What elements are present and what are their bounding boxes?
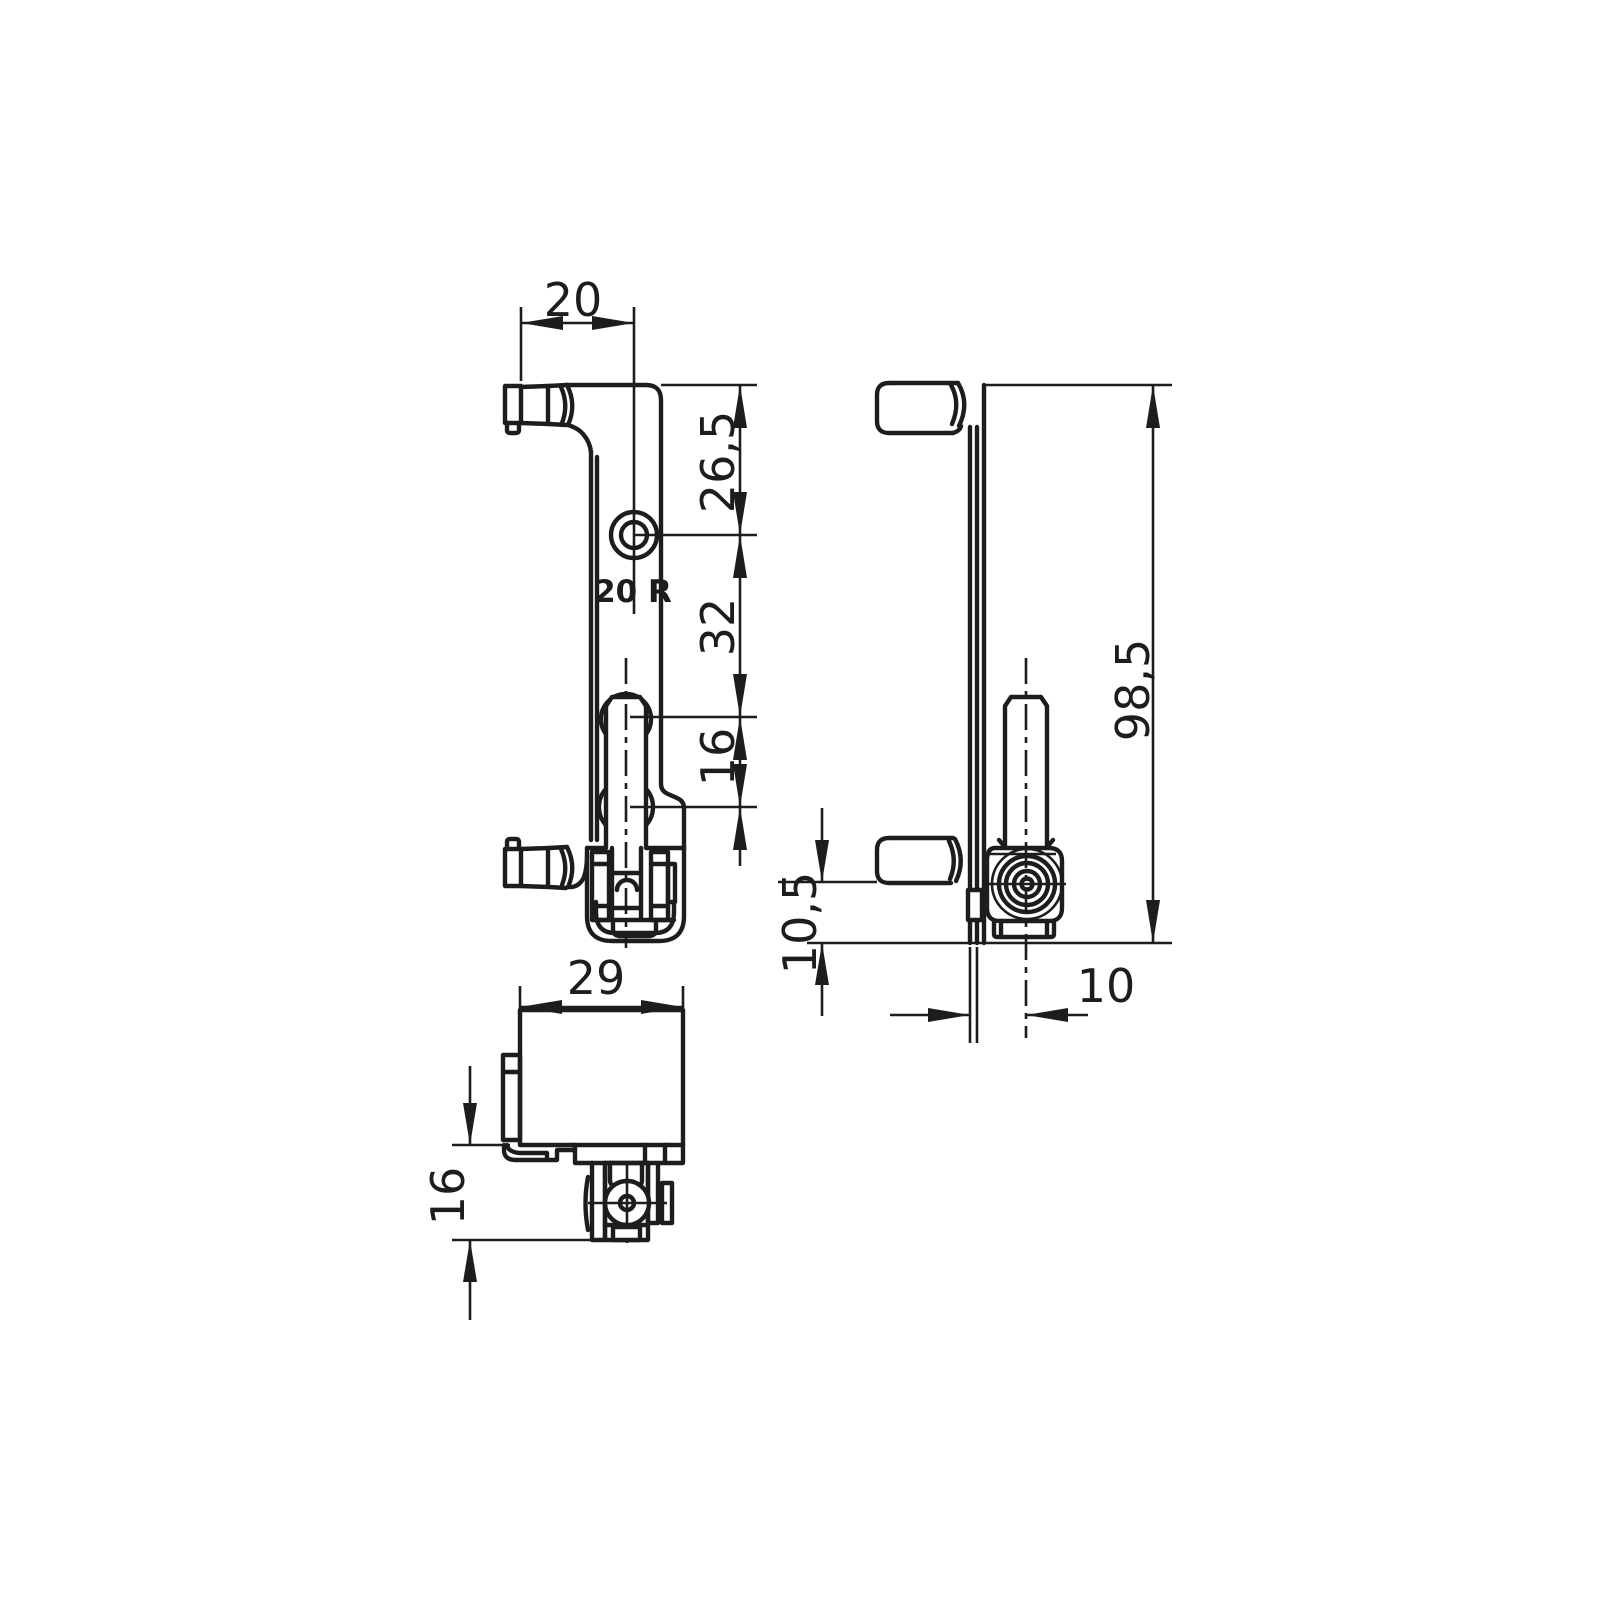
side-plate-edges (970, 385, 984, 943)
dim-label-10: 10 (1077, 959, 1136, 1013)
drawing-sheet: 20 R (0, 0, 1600, 1600)
dim-label-16-front: 16 (691, 728, 745, 787)
technical-drawing: 20 R (0, 0, 1600, 1600)
dim-label-20: 20 (544, 273, 603, 327)
dim-label-985: 98,5 (1106, 639, 1160, 741)
dim-label-16-bottom: 16 (421, 1167, 475, 1226)
side-plate-latch (968, 890, 982, 920)
dim-label-29: 29 (567, 951, 626, 1005)
dim-label-265: 26,5 (691, 411, 745, 513)
sheet-background (0, 0, 1600, 1600)
dim-label-105: 10,5 (773, 872, 827, 974)
dim-label-32: 32 (691, 598, 745, 657)
